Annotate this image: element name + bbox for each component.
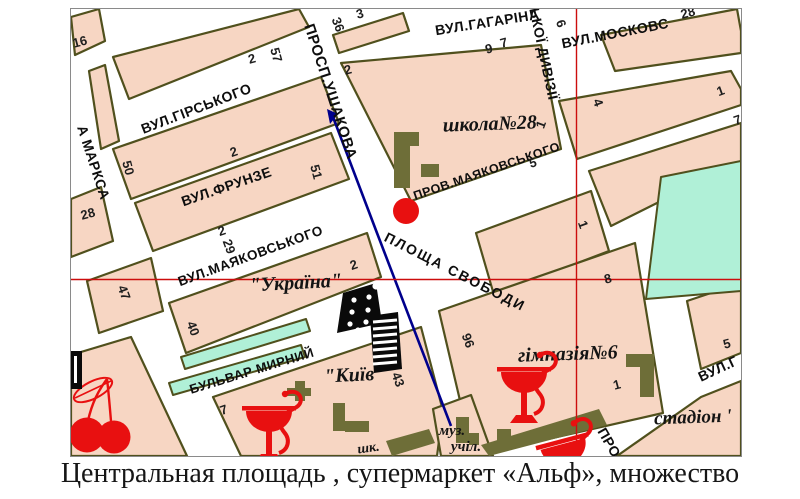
building-footprint xyxy=(640,367,654,397)
cherry-icon-part xyxy=(98,421,131,454)
pharmacy-icon-part xyxy=(537,352,543,358)
pharmacy-icon-part xyxy=(282,391,288,397)
city-map: ПРОСП.УШАКОВАВУЛ.ГАГАРІНАВУЛ.МОСКОВСЬКОЇ… xyxy=(70,8,742,457)
street-label: ВУЛ.ГАГАРІНА xyxy=(434,9,540,38)
pharmacy-icon-part xyxy=(521,387,527,419)
striped-building-icon-part xyxy=(373,362,397,364)
place-label: гімназія№6 xyxy=(518,341,618,366)
cinema-icon-part xyxy=(349,309,354,314)
building-footprint xyxy=(394,132,410,188)
place-label: шк. xyxy=(356,440,380,456)
striped-building-icon-part xyxy=(373,355,397,357)
pharmacy-icon-part xyxy=(497,367,551,372)
cinema-icon-part xyxy=(365,307,370,312)
building-footprint xyxy=(345,421,369,432)
pharmacy-icon-part xyxy=(266,426,272,456)
cinema-icon-part xyxy=(372,282,379,289)
place-label: стадіон ' xyxy=(654,406,732,430)
green-block-east xyxy=(646,161,741,299)
cinema-icon-part xyxy=(363,319,368,324)
map-canvas: ПРОСП.УШАКОВАВУЛ.ГАГАРІНАВУЛ.МОСКОВСЬКОЇ… xyxy=(71,9,741,456)
striped-building-icon xyxy=(370,312,402,373)
striped-building-icon-part xyxy=(373,341,397,343)
striped-building-icon-part xyxy=(373,334,397,336)
house-number: 6 xyxy=(553,17,570,29)
building-footprint xyxy=(410,132,419,146)
house-number: 3 xyxy=(354,9,365,22)
block-topright-28 xyxy=(601,9,741,71)
cinema-icon-part xyxy=(366,294,371,299)
striped-building-icon-part xyxy=(373,320,397,322)
caption: Центральная площадь , супермаркет «Альф»… xyxy=(0,458,800,499)
cinema-icon-part xyxy=(347,321,352,326)
striped-building-icon-part xyxy=(373,327,397,329)
striped-building-icon-part xyxy=(373,348,397,350)
building-footprint xyxy=(421,164,439,177)
house-number: 57 xyxy=(267,46,285,64)
place-label: учіл. xyxy=(449,439,481,455)
location-marker-dot xyxy=(393,198,419,224)
black-edge-icon-part xyxy=(74,356,77,383)
place-label: муз. xyxy=(438,423,465,439)
place-label: школа№28 xyxy=(442,111,537,136)
cinema-icon-part xyxy=(355,327,360,332)
pharmacy-icon-part xyxy=(242,406,296,411)
cinema-icon-part xyxy=(351,297,356,302)
house-number: 2 xyxy=(246,50,257,66)
street-label: ПРО xyxy=(594,425,624,456)
building-footprint xyxy=(626,354,654,367)
black-edge-icon xyxy=(71,351,82,389)
building-footprint xyxy=(333,403,345,431)
